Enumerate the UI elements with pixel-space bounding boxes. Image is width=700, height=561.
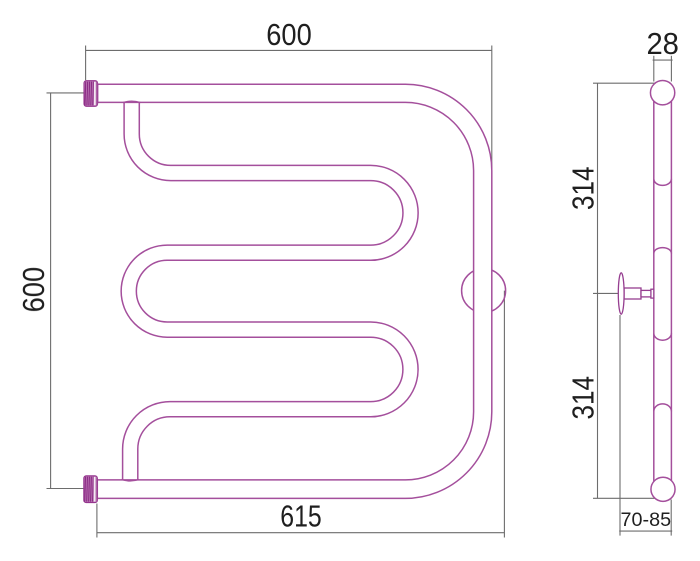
- svg-text:314: 314: [565, 376, 600, 420]
- svg-text:600: 600: [16, 267, 51, 313]
- svg-text:615: 615: [280, 499, 322, 534]
- svg-text:70-85: 70-85: [621, 509, 672, 531]
- svg-text:600: 600: [266, 17, 312, 52]
- svg-text:28: 28: [646, 26, 679, 61]
- svg-text:314: 314: [565, 167, 600, 211]
